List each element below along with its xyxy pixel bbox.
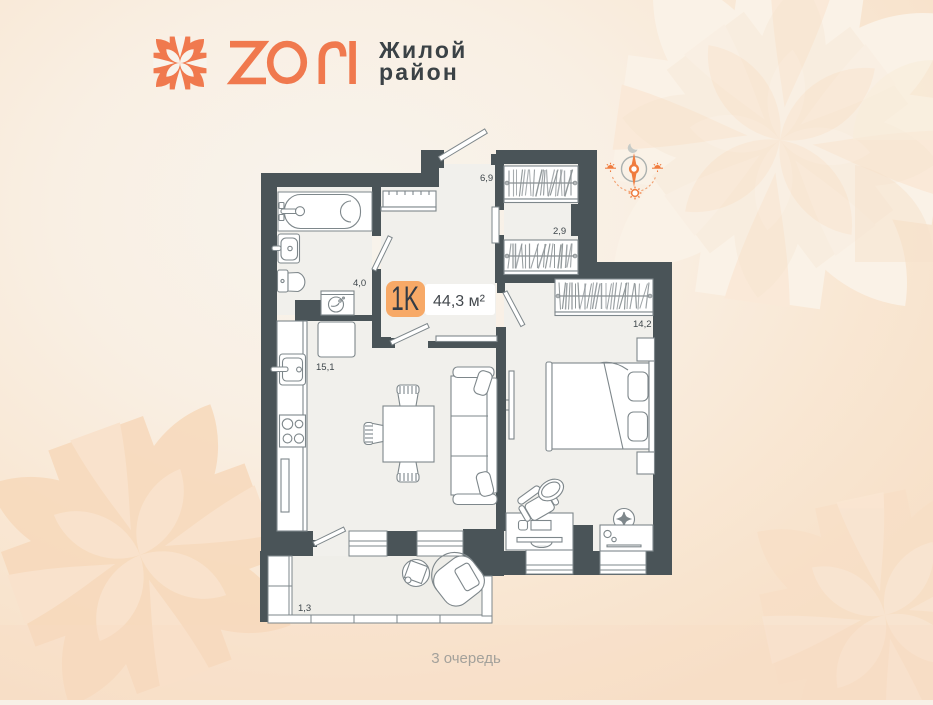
svg-text:14,2: 14,2 xyxy=(633,319,652,330)
svg-text:4,0: 4,0 xyxy=(353,278,366,289)
svg-text:15,1: 15,1 xyxy=(316,362,335,373)
svg-text:6,9: 6,9 xyxy=(480,173,493,184)
svg-text:2,9: 2,9 xyxy=(553,226,566,237)
svg-text:район: район xyxy=(379,59,459,85)
svg-text:1K: 1K xyxy=(391,280,419,318)
svg-text:44,3 м²: 44,3 м² xyxy=(433,293,486,310)
svg-text:3 очередь: 3 очередь xyxy=(431,650,501,667)
svg-text:1,3: 1,3 xyxy=(298,603,311,614)
